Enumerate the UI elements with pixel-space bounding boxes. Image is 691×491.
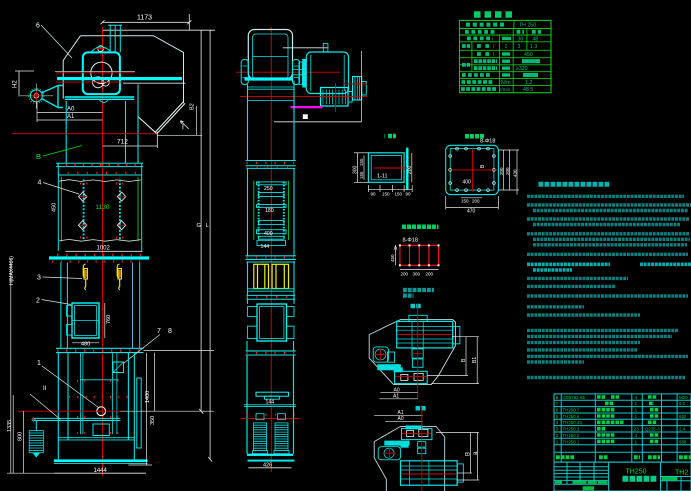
svg-text:2: 2 bbox=[36, 298, 40, 305]
svg-text:90: 90 bbox=[406, 191, 412, 196]
svg-text:1335: 1335 bbox=[7, 420, 13, 432]
svg-text:A0: A0 bbox=[398, 416, 404, 422]
svg-text:350: 350 bbox=[150, 416, 156, 425]
svg-text:H(MAX4466): H(MAX4466) bbox=[9, 256, 15, 285]
svg-text:TH250.7: TH250.7 bbox=[563, 408, 580, 413]
svg-text:1: 1 bbox=[635, 439, 638, 445]
svg-text:1.3: 1.3 bbox=[530, 44, 537, 50]
svg-text:200: 200 bbox=[407, 165, 413, 174]
svg-text:1-11: 1-11 bbox=[377, 174, 388, 180]
svg-text:6: 6 bbox=[36, 23, 40, 30]
svg-text:4: 4 bbox=[556, 420, 559, 426]
svg-text:Q235-A: Q235-A bbox=[645, 427, 660, 432]
svg-text:450: 450 bbox=[390, 254, 395, 262]
svg-text:II: II bbox=[43, 386, 47, 392]
svg-text:400: 400 bbox=[264, 231, 273, 237]
svg-text:90: 90 bbox=[371, 191, 377, 196]
svg-text:A1: A1 bbox=[67, 114, 75, 120]
svg-text:5: 5 bbox=[556, 414, 559, 420]
svg-text:48: 48 bbox=[533, 36, 539, 42]
svg-text:TH250.3: TH250.3 bbox=[563, 427, 580, 432]
svg-text:450: 450 bbox=[52, 203, 58, 212]
svg-text:400: 400 bbox=[463, 180, 472, 186]
svg-text:200: 200 bbox=[505, 167, 510, 175]
svg-text:30: 30 bbox=[518, 36, 524, 42]
svg-text:150: 150 bbox=[395, 191, 403, 196]
svg-text:r/min: r/min bbox=[500, 87, 511, 92]
svg-text:8: 8 bbox=[168, 328, 172, 335]
svg-text:3: 3 bbox=[37, 275, 41, 282]
svg-text:8-Φ18: 8-Φ18 bbox=[403, 238, 418, 244]
svg-text:800: 800 bbox=[18, 432, 24, 441]
svg-text:1130: 1130 bbox=[96, 204, 110, 211]
svg-text:250: 250 bbox=[264, 186, 273, 192]
svg-text:1: 1 bbox=[635, 414, 638, 420]
svg-text:G: G bbox=[197, 223, 202, 229]
svg-text:1: 1 bbox=[37, 360, 41, 367]
svg-text:200: 200 bbox=[426, 272, 434, 277]
svg-text:3: 3 bbox=[518, 44, 521, 50]
svg-text:23: 23 bbox=[634, 427, 640, 433]
svg-text:8-Φ18: 8-Φ18 bbox=[480, 139, 495, 145]
svg-text:430: 430 bbox=[512, 169, 517, 177]
svg-text:200: 200 bbox=[499, 167, 504, 175]
svg-text:1.2: 1.2 bbox=[525, 80, 532, 86]
svg-text:688: 688 bbox=[679, 439, 687, 444]
svg-text:1173: 1173 bbox=[137, 15, 152, 22]
svg-text:6: 6 bbox=[556, 408, 559, 414]
svg-text:7: 7 bbox=[157, 328, 161, 335]
svg-text:200: 200 bbox=[472, 198, 480, 203]
svg-text:150: 150 bbox=[382, 191, 390, 196]
svg-text:155: 155 bbox=[359, 171, 364, 179]
svg-text:712: 712 bbox=[117, 139, 128, 146]
svg-text:150: 150 bbox=[461, 198, 469, 203]
svg-text:2.4: 2.4 bbox=[679, 427, 686, 432]
svg-text:7: 7 bbox=[556, 401, 559, 407]
svg-text:B: B bbox=[36, 152, 41, 161]
svg-text:1400: 1400 bbox=[145, 391, 151, 403]
svg-text:4: 4 bbox=[635, 395, 638, 401]
svg-text:9.0: 9.0 bbox=[679, 401, 686, 406]
svg-text:A0: A0 bbox=[67, 107, 75, 113]
svg-text:A1: A1 bbox=[393, 394, 399, 400]
svg-text:470: 470 bbox=[467, 208, 476, 214]
svg-text:B1: B1 bbox=[472, 357, 478, 363]
svg-text:TH250.45: TH250.45 bbox=[563, 420, 583, 425]
svg-text:1: 1 bbox=[635, 401, 638, 407]
svg-text:4: 4 bbox=[635, 433, 638, 439]
svg-text:A0: A0 bbox=[394, 388, 400, 394]
svg-text:155: 155 bbox=[359, 158, 364, 166]
svg-text:632: 632 bbox=[679, 414, 687, 419]
svg-text:1: 1 bbox=[556, 439, 559, 445]
svg-text:4: 4 bbox=[38, 180, 42, 187]
svg-text:TH250.1: TH250.1 bbox=[563, 439, 580, 444]
svg-text:180: 180 bbox=[265, 208, 274, 214]
svg-text:TH250.2: TH250.2 bbox=[563, 433, 580, 438]
svg-text:2: 2 bbox=[556, 433, 559, 439]
svg-text:8: 8 bbox=[556, 395, 559, 401]
svg-text:B: B bbox=[466, 452, 472, 456]
svg-text:1002: 1002 bbox=[97, 246, 111, 252]
svg-text:TH 250: TH 250 bbox=[519, 23, 536, 29]
svg-text:300: 300 bbox=[413, 272, 421, 277]
svg-text:GB5782-86: GB5782-86 bbox=[563, 395, 586, 400]
svg-text:TH2: TH2 bbox=[675, 470, 688, 477]
svg-text:H2: H2 bbox=[13, 80, 19, 88]
svg-text:B2: B2 bbox=[190, 103, 196, 110]
svg-text:450: 450 bbox=[524, 52, 533, 58]
svg-text:N/m: N/m bbox=[501, 80, 511, 86]
svg-text:48.5: 48.5 bbox=[523, 87, 533, 93]
svg-text:1: 1 bbox=[635, 408, 638, 414]
svg-text:480: 480 bbox=[81, 342, 90, 348]
svg-text:200: 200 bbox=[401, 272, 409, 277]
svg-text:1: 1 bbox=[505, 44, 508, 50]
svg-text:760: 760 bbox=[106, 315, 112, 324]
svg-text:≥320: ≥320 bbox=[516, 66, 528, 72]
svg-text:M20: M20 bbox=[679, 395, 688, 400]
svg-text:300: 300 bbox=[353, 165, 359, 174]
svg-text:TH250: TH250 bbox=[626, 469, 647, 476]
svg-text:144: 144 bbox=[261, 244, 270, 250]
svg-text:TH250.6: TH250.6 bbox=[563, 414, 580, 419]
svg-text:3: 3 bbox=[556, 427, 559, 433]
